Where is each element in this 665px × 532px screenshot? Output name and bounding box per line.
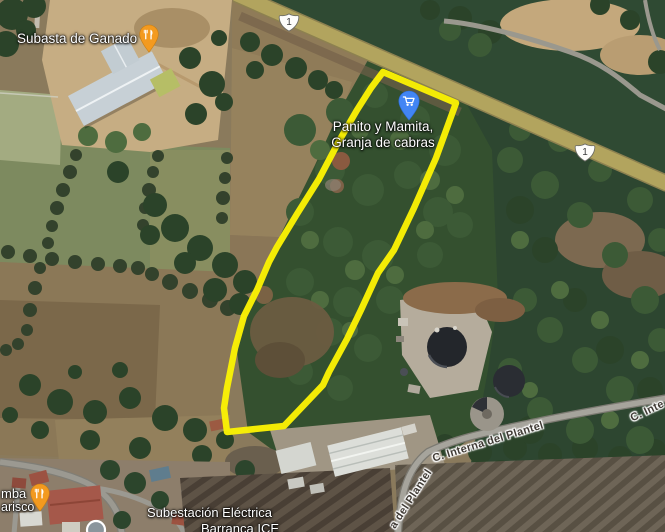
route-1-shield: 1 — [278, 13, 300, 32]
poi-label-subasta-de-ganado[interactable]: Subasta de Ganado — [17, 31, 137, 46]
route-1-shield: 1 — [574, 143, 596, 162]
poi-label-line1: Panito y Mamita, — [328, 119, 438, 135]
satellite-imagery — [0, 0, 665, 532]
poi-label-panito-y-mamita[interactable]: Panito y Mamita, Granja de cabras — [328, 119, 438, 150]
poi-label-line2: Granja de cabras — [328, 135, 438, 151]
restaurant-pin-subasta[interactable] — [138, 24, 160, 58]
poi-label-partial-arisco[interactable]: arisco — [1, 500, 34, 514]
route-number: 1 — [574, 147, 596, 158]
poi-label-subestacion-line1[interactable]: Subestación Eléctrica — [147, 505, 272, 520]
route-number: 1 — [278, 17, 300, 28]
poi-label-subestacion-line2[interactable]: Barranca ICE — [201, 521, 279, 532]
map-canvas[interactable]: 1 1 Subasta de Ganado Panito y Mamita, G… — [0, 0, 665, 532]
poi-label-partial-mba[interactable]: mba — [1, 486, 26, 501]
generic-place-dot-pin[interactable] — [85, 519, 107, 532]
